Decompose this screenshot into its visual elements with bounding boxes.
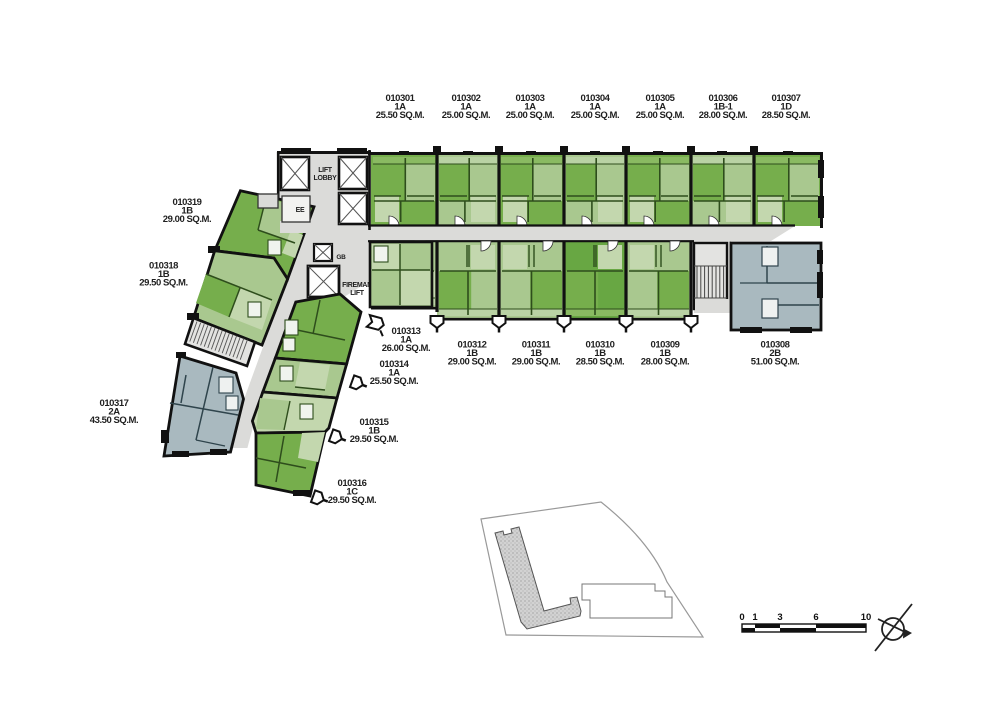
svg-text:1: 1	[752, 612, 758, 623]
svg-text:3: 3	[777, 612, 782, 623]
svg-text:10: 10	[861, 612, 872, 623]
svg-text:EE: EE	[296, 207, 305, 214]
svg-text:GB: GB	[336, 254, 346, 261]
svg-text:6: 6	[813, 612, 818, 623]
svg-text:0: 0	[739, 612, 744, 623]
